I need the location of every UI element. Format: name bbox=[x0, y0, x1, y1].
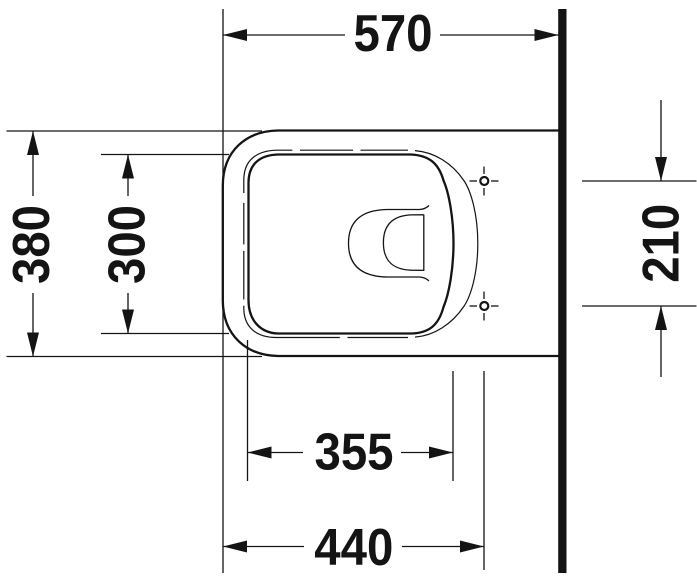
svg-text:380: 380 bbox=[3, 205, 60, 284]
svg-text:300: 300 bbox=[99, 205, 156, 284]
svg-text:210: 210 bbox=[633, 204, 690, 283]
svg-text:570: 570 bbox=[353, 5, 432, 62]
svg-text:440: 440 bbox=[314, 519, 393, 576]
svg-text:355: 355 bbox=[314, 424, 393, 481]
